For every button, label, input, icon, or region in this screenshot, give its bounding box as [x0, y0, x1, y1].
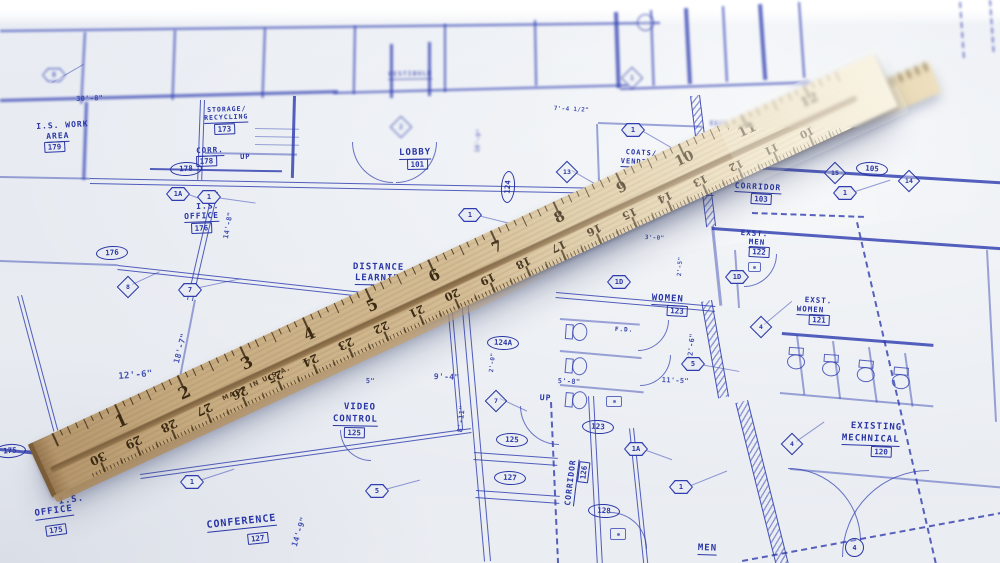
wall-line	[0, 176, 90, 180]
inch-tick	[482, 234, 485, 240]
inch-tick	[584, 187, 589, 197]
wall-line	[735, 400, 788, 563]
inch-tick	[396, 274, 401, 284]
inch-tick	[529, 213, 532, 219]
keynote-hexagon: 1	[621, 123, 645, 137]
inch-tick	[506, 224, 510, 232]
inch-tick	[513, 220, 516, 226]
door-swing-arc	[638, 320, 669, 351]
door-swing-arc	[352, 142, 393, 183]
door-number-oval: 127	[494, 470, 526, 485]
inch-tick	[130, 397, 134, 405]
wall-line	[597, 124, 601, 184]
inch-tick	[169, 379, 172, 385]
room-label: VIDEO	[344, 402, 376, 413]
inch-tick	[349, 296, 353, 304]
wall-line	[534, 20, 537, 86]
wall-line	[711, 226, 722, 306]
inch-tick	[294, 321, 297, 327]
room-label: CONFERENCE	[206, 513, 277, 533]
inch-tick	[419, 263, 422, 269]
keynote-hexagon: 7	[178, 283, 202, 297]
keynote-hexagon: 1	[833, 186, 857, 200]
dimension-label: 5"	[366, 377, 375, 385]
inch-tick	[623, 169, 626, 175]
inch-tick	[263, 336, 266, 342]
inch-tick	[670, 148, 673, 154]
wall-line	[782, 332, 934, 346]
inch-tick	[693, 137, 697, 145]
inch-tick	[247, 343, 250, 349]
inch-tick	[380, 281, 384, 289]
door-number-oval: 125	[496, 432, 528, 447]
dimension-label: 12'-6"	[118, 369, 153, 382]
room-label: F.D.	[615, 326, 634, 334]
photo-ruler-on-blueprint: I.S. WORKAREASTORAGE/RECYCLINGCORR.UPUPI…	[0, 0, 1000, 563]
room-number-box: 175	[45, 523, 67, 537]
room-number-box: 176	[191, 222, 212, 234]
dimension-label: 16'-9"	[474, 129, 483, 153]
wall-line	[333, 84, 628, 93]
toilet-fixture	[564, 356, 587, 376]
inch-number: 8	[547, 205, 572, 229]
wall-line	[798, 2, 805, 78]
inch-tick	[161, 383, 165, 391]
room-label: RECYCLING	[204, 112, 249, 123]
keynote-diamond: 1	[621, 67, 644, 90]
wall-line	[172, 30, 176, 100]
keynote-diamond: 13	[556, 161, 579, 184]
keynote-diamond: 14	[898, 170, 921, 193]
door-number-oval: 124	[500, 171, 516, 204]
inch-tick	[216, 357, 219, 363]
sink-fixture	[748, 262, 761, 272]
wall-line	[262, 28, 266, 98]
inch-tick	[474, 238, 478, 246]
room-number-box: 127	[247, 532, 269, 545]
inch-tick	[98, 412, 102, 420]
wall-line	[444, 24, 446, 92]
dimension-label: 14'-9"	[290, 516, 308, 548]
inch-tick	[639, 162, 642, 168]
inch-tick	[459, 245, 464, 255]
keynote-diamond: 8	[117, 276, 140, 299]
inch-tick	[271, 332, 276, 342]
keynote-hexagon: 8	[42, 68, 66, 82]
dashed-line	[752, 212, 864, 218]
wall-line	[473, 452, 557, 466]
inch-tick	[709, 129, 714, 139]
dimension-label: 3'-0"	[645, 234, 665, 242]
inch-tick	[404, 271, 407, 277]
dimension-label: 14'-8"	[222, 211, 235, 239]
room-number-box: 123	[666, 305, 687, 317]
wall-line	[701, 300, 729, 398]
inch-tick	[357, 292, 360, 298]
keynote-hexagon: 1	[669, 480, 693, 494]
room-number-box: 122	[748, 246, 769, 258]
room-label: MECHNICAL	[842, 433, 900, 447]
inch-tick	[341, 299, 344, 305]
inch-tick	[153, 386, 156, 392]
inch-tick	[388, 278, 391, 284]
keynote-hexagon: 1	[458, 208, 482, 222]
inch-tick	[122, 401, 125, 407]
room-label: UP	[240, 153, 251, 161]
inch-tick	[568, 195, 572, 203]
inch-tick	[521, 216, 526, 226]
inch-tick	[607, 176, 610, 182]
toilet-fixture	[891, 366, 911, 389]
inch-tick	[451, 249, 454, 255]
leader-line	[764, 301, 792, 325]
inch-tick	[278, 328, 281, 334]
inch-tick	[200, 365, 203, 371]
inch-tick	[286, 325, 290, 333]
inch-tick	[138, 394, 141, 400]
keynote-diamond: 7	[485, 390, 508, 413]
wall-line	[0, 260, 118, 266]
inch-tick	[443, 252, 447, 260]
dashed-line	[989, 0, 995, 52]
dimension-label: 30'-8"	[76, 94, 103, 103]
inch-tick	[185, 372, 188, 378]
inch-tick	[412, 267, 416, 275]
inch-tick	[83, 419, 88, 429]
inch-tick	[51, 433, 58, 446]
wall-line	[620, 81, 810, 89]
dimension-label: 11'-5"	[662, 376, 689, 385]
keynote-hexagon: 1	[197, 190, 221, 204]
inch-tick	[91, 415, 94, 421]
dimension-label: 7'-4 1/2"	[554, 105, 590, 114]
inch-tick	[545, 205, 548, 211]
room-number-box: 173	[214, 123, 235, 135]
dimension-label: 2'-0"	[488, 353, 497, 373]
wall-line	[0, 90, 338, 101]
room-label: CORRIDOR	[734, 181, 781, 194]
keynote-hexagon: 1D	[607, 275, 631, 289]
wall-line	[0, 22, 660, 32]
room-label: EXISTING	[851, 421, 903, 433]
toilet-fixture	[822, 354, 841, 377]
keynote-hexagon: 1	[180, 475, 204, 489]
wall-line	[758, 4, 767, 80]
dimension-label: 5'-8"	[558, 377, 581, 386]
wall-line	[598, 122, 702, 127]
wall-line	[556, 292, 716, 311]
keynote-hexagon: 1A	[166, 187, 190, 201]
leader-line	[132, 271, 160, 284]
inch-tick	[662, 151, 666, 159]
inch-tick	[435, 256, 438, 262]
room-label: VESTIBULE	[388, 69, 432, 79]
room-label: OFFICE	[184, 211, 219, 223]
keynote-hexagon: 5	[681, 357, 705, 371]
inch-tick	[59, 430, 62, 436]
inch-tick	[498, 227, 501, 233]
leader-line	[852, 180, 890, 193]
inch-number: 9	[609, 176, 634, 199]
inch-tick	[600, 180, 604, 188]
toilet-fixture	[565, 322, 588, 341]
wall-line	[353, 26, 356, 94]
door-number-oval: 124A	[487, 335, 519, 350]
inch-tick	[560, 198, 563, 204]
wall-line	[255, 136, 299, 138]
room-number-box: 120	[871, 446, 892, 458]
door-number-oval: 175	[0, 443, 26, 459]
room-number-box: 179	[44, 141, 65, 153]
inch-tick	[576, 191, 579, 197]
room-number-box: 121	[808, 314, 829, 326]
leader-line	[796, 421, 824, 441]
room-label: UP	[540, 393, 552, 403]
inch-tick	[686, 140, 689, 146]
wall-line	[684, 8, 692, 84]
inch-tick	[466, 242, 469, 248]
inch-tick	[232, 350, 235, 356]
inch-tick	[654, 155, 657, 161]
toilet-fixture	[564, 390, 587, 410]
wall-line	[986, 250, 997, 422]
keynote-diamond: 4	[781, 433, 804, 456]
door-number-oval: 176	[96, 245, 129, 261]
inch-tick	[192, 368, 196, 376]
inch-tick	[701, 133, 704, 139]
inch-tick	[537, 209, 541, 217]
inch-tick	[224, 354, 228, 362]
wall-line	[722, 6, 728, 82]
leader-line	[216, 197, 256, 203]
inch-tick	[592, 184, 595, 190]
inch-tick	[318, 310, 322, 318]
room-label: DISTANCE	[353, 262, 405, 273]
inch-tick	[310, 314, 313, 320]
wall-line	[17, 295, 58, 432]
keynote-diamond: 15	[824, 162, 847, 185]
keynote-hexagon: 1D	[725, 270, 749, 284]
inch-number: 6	[422, 263, 448, 288]
inch-tick	[631, 166, 635, 174]
room-number-box: 103	[750, 193, 771, 205]
inch-tick	[208, 361, 213, 371]
sink-fixture	[606, 396, 622, 407]
room-label: CORRIDOR	[563, 459, 579, 506]
wall-line	[255, 128, 299, 130]
wall-line	[475, 490, 559, 504]
inch-tick	[67, 426, 71, 434]
inch-tick	[255, 339, 259, 347]
inch-tick	[372, 285, 375, 291]
room-label: OFFICE	[34, 504, 74, 521]
inch-tick	[646, 158, 651, 168]
room-number-box: 101	[407, 159, 428, 170]
inch-tick	[333, 303, 338, 313]
door-number-oval: 123	[582, 419, 615, 435]
room-label: I.S. WORK	[36, 119, 89, 131]
keynote-circle	[637, 14, 654, 31]
wall-line	[255, 144, 299, 146]
room-number-box: 125	[344, 427, 365, 438]
room-number-box: 126	[577, 462, 590, 484]
keynote-hexagon: 1A	[624, 442, 648, 456]
dashed-line	[959, 2, 965, 58]
toilet-fixture	[856, 359, 876, 382]
inch-number: 10	[672, 147, 697, 170]
inch-number: 7	[484, 234, 510, 259]
inch-tick	[75, 422, 78, 428]
inch-tick	[145, 390, 150, 400]
room-label: CONTROL	[333, 414, 378, 426]
inch-tick	[106, 408, 109, 414]
keynote-hexagon: 5	[365, 484, 389, 498]
dimension-label: 9'-4"	[434, 372, 460, 382]
keynote-circle: 4	[845, 538, 864, 557]
dimension-label: 2'-5"	[676, 256, 684, 276]
room-label: MEN	[698, 543, 718, 555]
sink-fixture	[610, 528, 626, 540]
wall-line	[80, 32, 86, 104]
toilet-fixture	[787, 347, 806, 370]
inch-tick	[325, 307, 328, 313]
wall-line	[82, 102, 88, 180]
keynote-diamond: 2	[390, 116, 413, 139]
